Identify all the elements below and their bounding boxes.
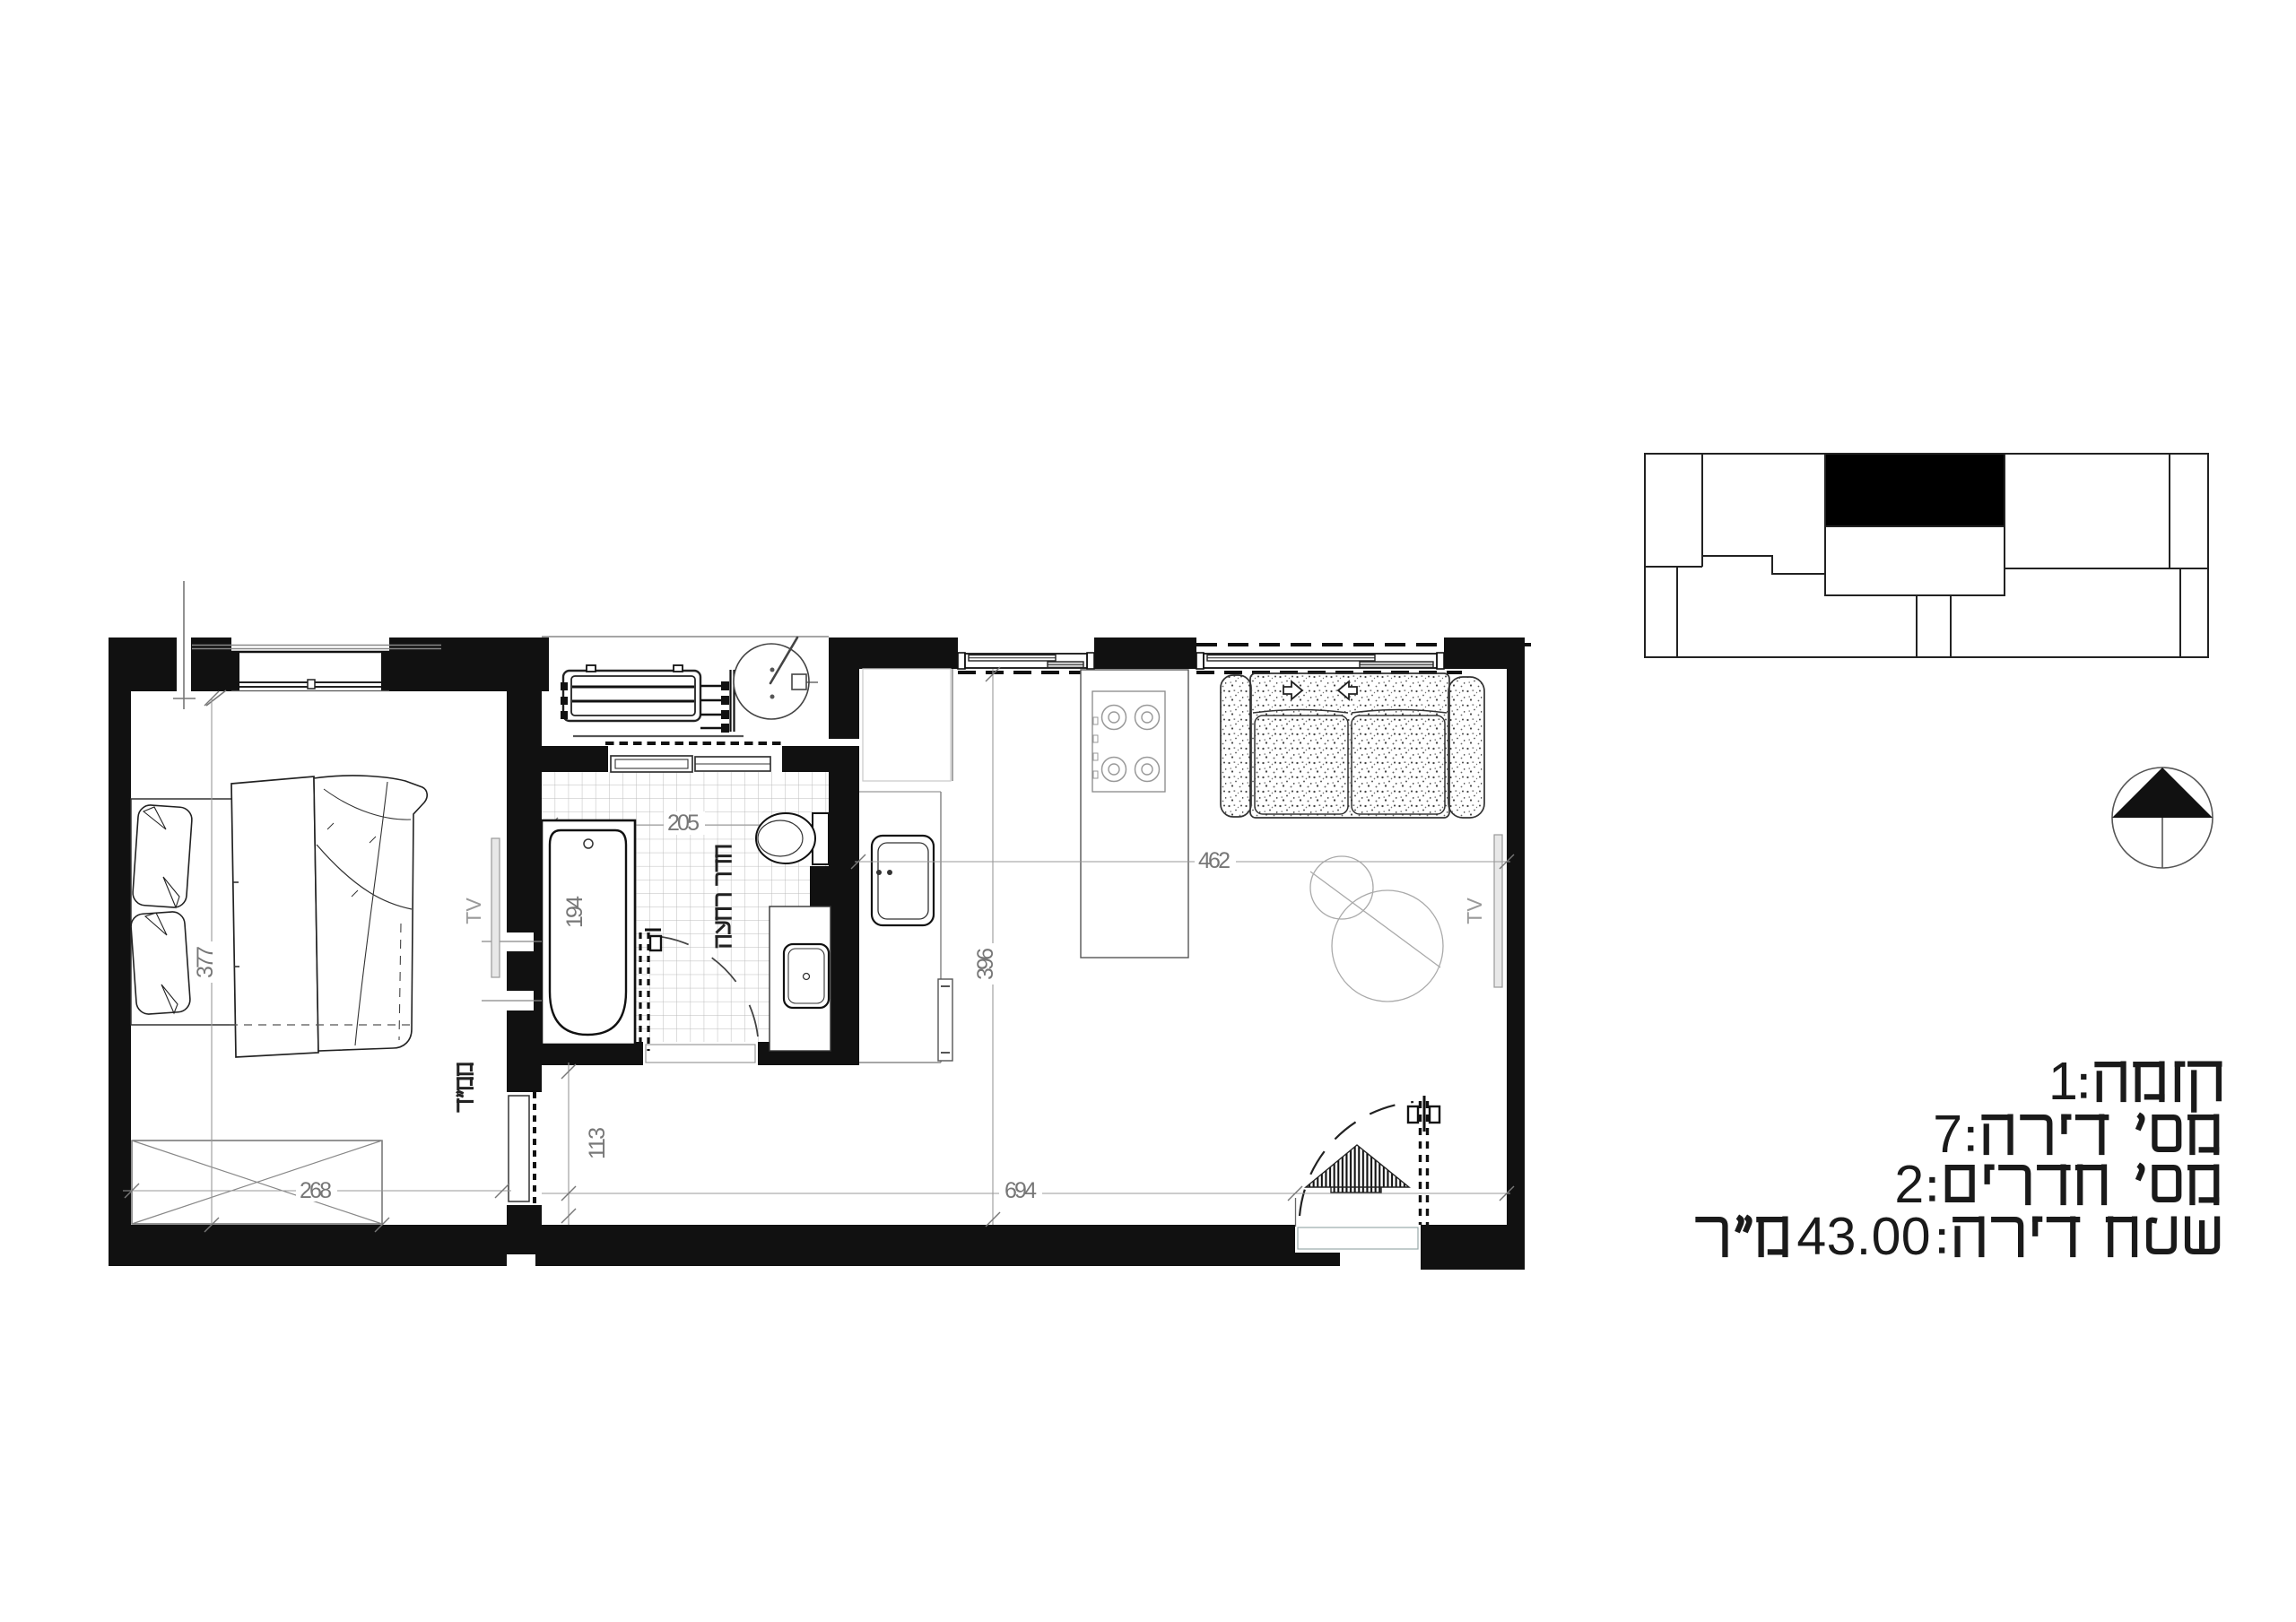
- svg-text:396: 396: [973, 948, 998, 980]
- svg-text:268: 268: [300, 1178, 332, 1203]
- svg-text:43.00: 43.00: [1796, 1207, 1930, 1266]
- svg-text:694: 694: [1004, 1178, 1037, 1203]
- svg-text:377: 377: [193, 946, 218, 978]
- svg-text:205: 205: [667, 811, 700, 836]
- svg-text:113: 113: [585, 1127, 610, 1159]
- svg-text:194: 194: [562, 896, 587, 928]
- svg-text:7: 7: [1933, 1105, 1962, 1164]
- svg-text:TV: TV: [462, 898, 485, 924]
- svg-text:1: 1: [2048, 1052, 2078, 1111]
- svg-text:462: 462: [1198, 848, 1231, 873]
- svg-text:TV: TV: [1463, 898, 1486, 924]
- svg-text:2: 2: [1894, 1155, 1924, 1214]
